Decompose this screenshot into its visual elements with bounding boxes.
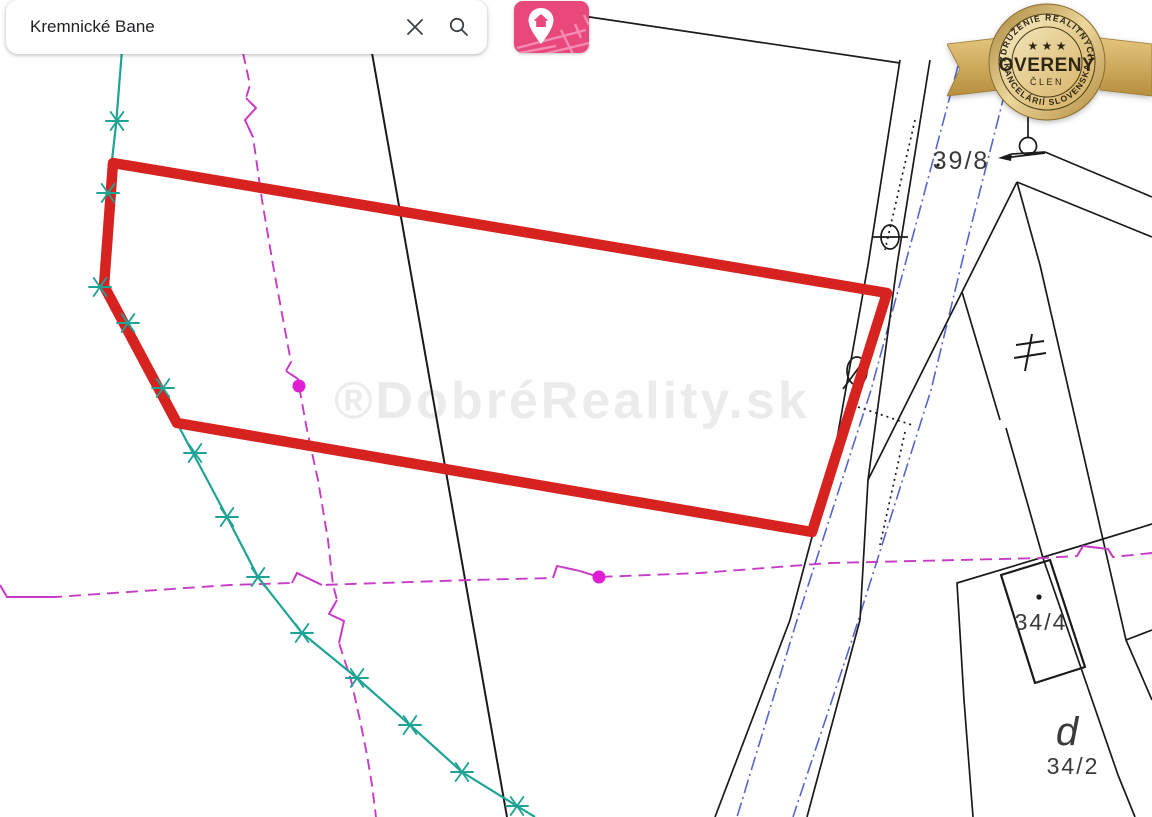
page: { "search_bar": { "query": "Kremnické Ba…	[0, 0, 1152, 817]
building-point	[1036, 594, 1041, 599]
badge-stars: ★ ★ ★	[1028, 39, 1067, 53]
close-icon	[405, 17, 425, 37]
search-bar	[6, 0, 487, 54]
boundary-point-icon	[593, 571, 606, 584]
ribbon-right	[1100, 38, 1152, 96]
clear-search-button[interactable]	[393, 5, 437, 49]
certification-badge: ZDRUŽENIE REALITNÝCH KANCELÁRIÍ SLOVENSK…	[947, 0, 1152, 128]
arrow-icon	[998, 153, 1012, 161]
teal-boundary-line	[100, 50, 535, 817]
label-parcel-39-8: 39/8	[933, 147, 990, 175]
label-parcel-d: d	[1056, 710, 1080, 754]
map-pin-icon	[514, 1, 589, 53]
boundary-point-icon	[293, 380, 306, 393]
label-parcel-34-4: 34/4	[1015, 609, 1068, 635]
highlighted-parcel-outline[interactable]	[104, 163, 887, 532]
watermark-text: ®DobréReality.sk	[334, 372, 810, 430]
badge-title: OVERENÝ	[999, 54, 1095, 76]
badge-subtitle: ČLEN	[1030, 77, 1064, 87]
map-view-button[interactable]	[514, 1, 589, 53]
boundary-mark-icon	[1014, 334, 1046, 371]
search-icon	[448, 16, 470, 38]
search-button[interactable]	[437, 5, 481, 49]
search-input[interactable]	[6, 0, 393, 54]
label-parcel-34-2: 34/2	[1047, 753, 1100, 779]
